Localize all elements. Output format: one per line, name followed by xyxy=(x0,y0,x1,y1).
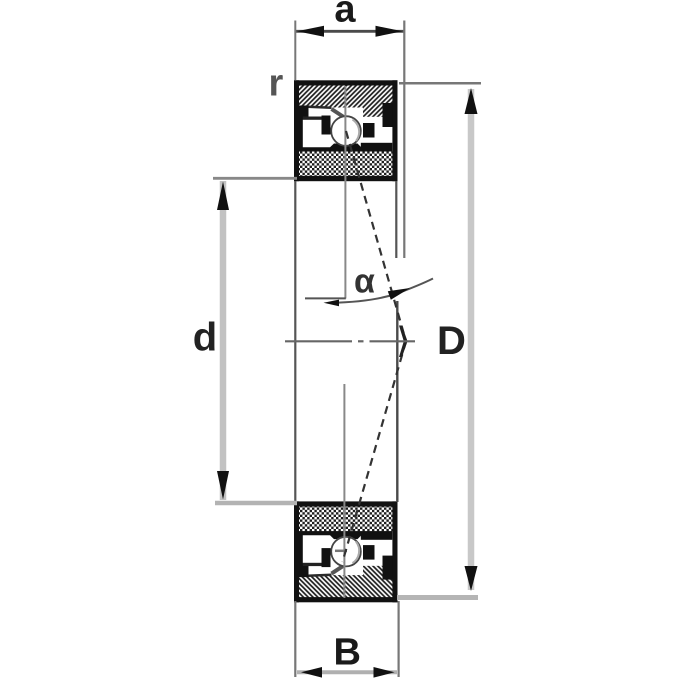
svg-text:d: d xyxy=(193,316,217,360)
svg-text:α: α xyxy=(354,263,375,301)
svg-text:D: D xyxy=(437,319,466,363)
svg-text:B: B xyxy=(334,632,361,674)
svg-text:r: r xyxy=(269,63,284,105)
svg-text:a: a xyxy=(334,0,356,31)
